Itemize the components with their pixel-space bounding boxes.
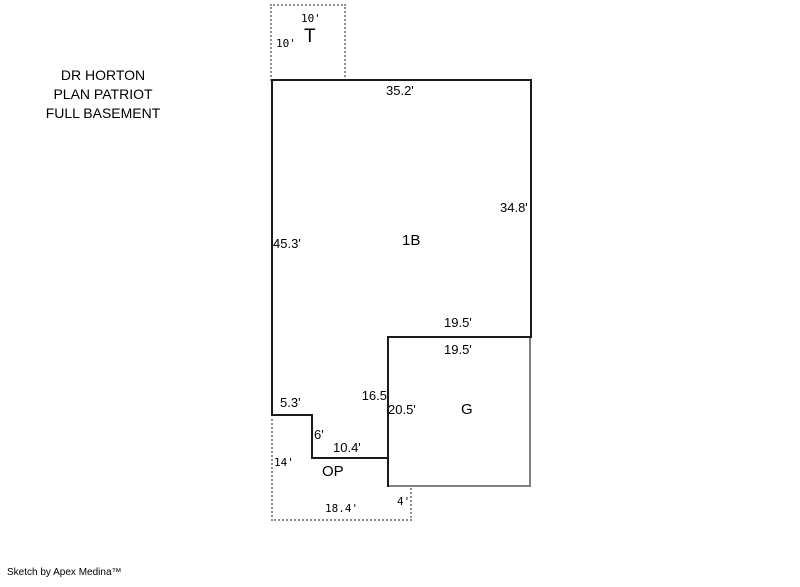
- plan-title: DR HORTON PLAN PATRIOT FULL BASEMENT: [38, 66, 168, 123]
- main-wall-top: [271, 79, 532, 81]
- dim-main-top: 35.2': [386, 84, 414, 98]
- main-wall-step-top: [271, 414, 313, 416]
- main-wall-bottom-mid: [311, 457, 389, 459]
- dim-terrace-left: 10': [276, 38, 296, 50]
- sketch-credit: Sketch by Apex Medina™: [7, 567, 122, 578]
- dim-step-side: 6': [314, 428, 324, 442]
- porch-dashed-left: [271, 414, 273, 521]
- plan-title-line3: FULL BASEMENT: [38, 104, 168, 123]
- garage-wall-right: [529, 337, 531, 487]
- porch-dashed-right: [410, 485, 412, 521]
- garage-wall-bottom: [387, 485, 531, 487]
- plan-title-line1: DR HORTON: [38, 66, 168, 85]
- garage-wall-top: [387, 336, 532, 338]
- area-label-terrace: T: [304, 27, 316, 47]
- dim-garage-left-upper: 16.5: [359, 389, 387, 403]
- dim-main-right: 34.8': [500, 201, 528, 215]
- dim-porch-top: 10.4': [333, 441, 361, 455]
- area-label-porch: OP: [322, 464, 344, 480]
- main-wall-right: [530, 79, 532, 338]
- dim-porch-right: 4': [397, 496, 410, 508]
- area-label-main: 1B: [402, 233, 420, 249]
- area-label-garage: G: [461, 402, 473, 418]
- dim-porch-bottom: 18.4': [325, 503, 358, 515]
- dim-garage-left-full: 20.5': [388, 403, 416, 417]
- dim-terrace-top: 10': [301, 13, 321, 25]
- dim-main-bottom-right: 19.5': [444, 316, 472, 330]
- dim-step-top: 5.3': [280, 396, 301, 410]
- plan-title-line2: PLAN PATRIOT: [38, 85, 168, 104]
- porch-dashed-bottom: [271, 519, 412, 521]
- dim-garage-top: 19.5': [444, 343, 472, 357]
- dim-porch-left: 14': [274, 457, 294, 469]
- dim-main-left: 45.3': [273, 237, 301, 251]
- floorplan-sketch: DR HORTON PLAN PATRIOT FULL BASEMENT 10'…: [0, 0, 800, 587]
- main-wall-step-side: [311, 414, 313, 459]
